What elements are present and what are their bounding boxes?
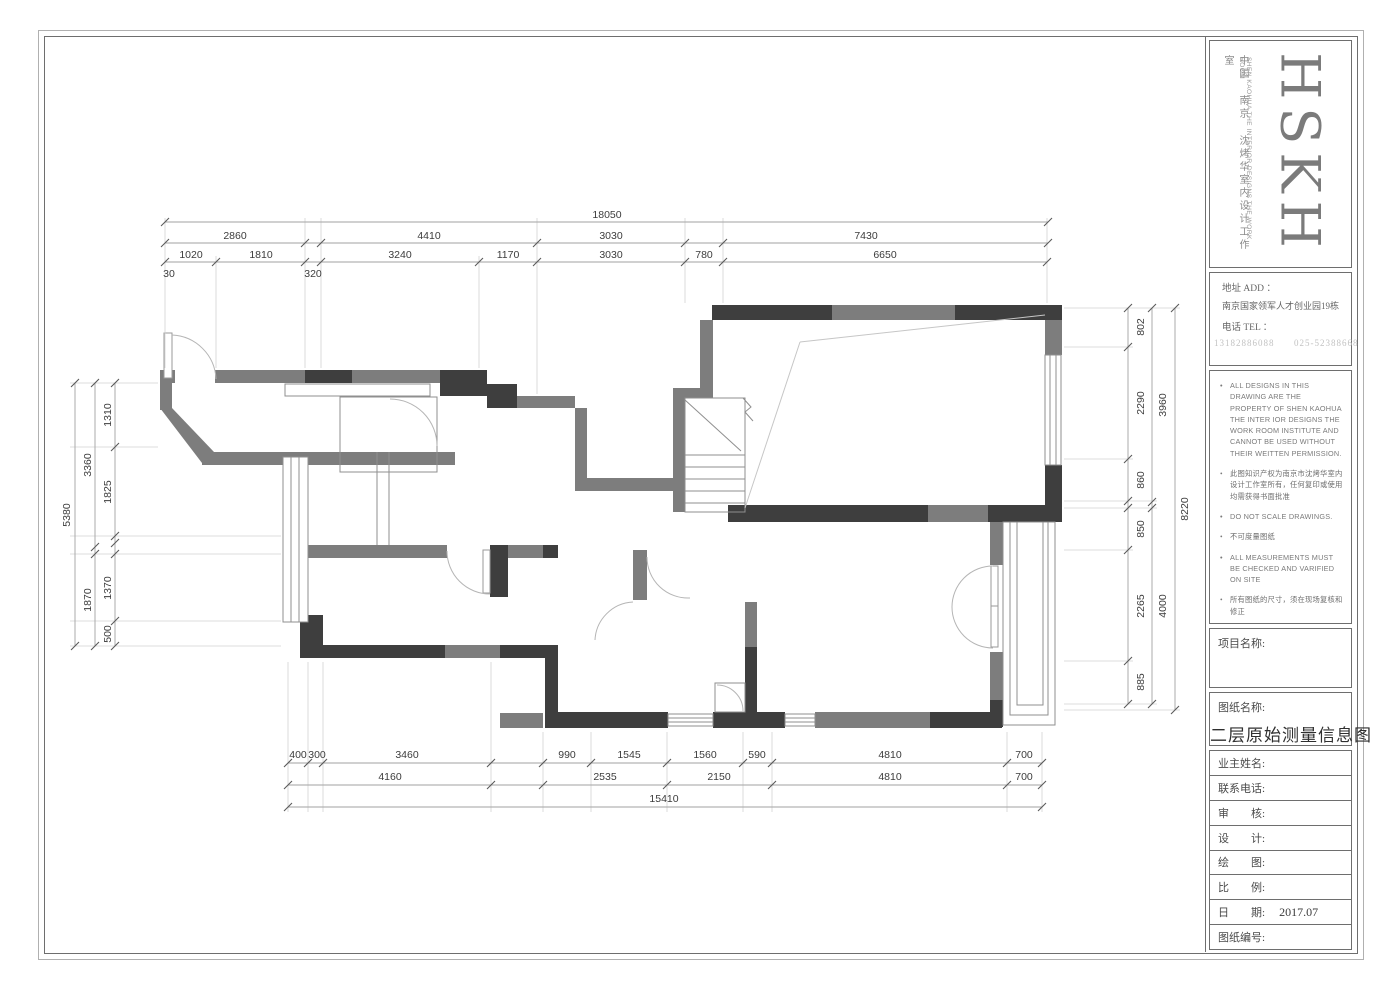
field-label: 审 核: xyxy=(1218,805,1265,821)
dim-label: 3030 xyxy=(599,249,623,261)
window-bottom-1 xyxy=(668,714,713,726)
dim-label: 2150 xyxy=(707,771,731,783)
dim-label: 700 xyxy=(1015,749,1033,761)
dim-label: 990 xyxy=(558,749,576,761)
dim-label: 2265 xyxy=(1135,594,1147,618)
bay-window-mid xyxy=(1010,522,1048,715)
french-door-swing-upper xyxy=(952,566,993,607)
dim-label: 400 xyxy=(289,749,307,761)
field-row-drawing-no: 图纸编号: xyxy=(1210,925,1351,949)
field-row-design: 设 计: xyxy=(1210,826,1351,851)
dim-label: 590 xyxy=(748,749,766,761)
note-item: ALL DESIGNS IN THIS DRAWING ARE THE PROP… xyxy=(1230,380,1343,459)
dim-label: 4810 xyxy=(878,771,902,783)
dim-label: 3360 xyxy=(82,453,94,477)
bay-window-inner xyxy=(1017,522,1043,705)
bay-window-outer xyxy=(1003,522,1055,725)
field-label: 图纸编号: xyxy=(1218,929,1265,945)
dim-label: 1810 xyxy=(249,249,273,261)
dim-label: 30 xyxy=(163,268,175,280)
drawing-name-label: 图纸名称: xyxy=(1218,699,1351,715)
closet-door-swing xyxy=(390,399,437,446)
dim-label: 3240 xyxy=(388,249,412,261)
dim-label: 7430 xyxy=(854,230,878,242)
window-right-living xyxy=(1045,355,1061,465)
note-item: 所有图纸的尺寸，须在现场复核和修正 xyxy=(1230,594,1343,617)
dim-label: 1370 xyxy=(102,576,114,600)
alcove-outline xyxy=(715,683,745,712)
middle-room-door-swing xyxy=(595,602,633,640)
logo-box: 中国 南京 沈烤华室内设计工作室 SHEN KAOHUA THE INTERIO… xyxy=(1209,40,1352,268)
field-label: 比 例: xyxy=(1218,879,1265,895)
field-label: 联系电话: xyxy=(1218,780,1265,796)
dim-label: 2860 xyxy=(223,230,247,242)
title-fields-box: 业主姓名: 联系电话: 审 核: 设 计: 绘 图: 比 例: 日 期: 201… xyxy=(1209,750,1352,950)
dim-label: 1825 xyxy=(102,480,114,504)
field-value: 2017.07 xyxy=(1279,905,1318,920)
dim-label: 4000 xyxy=(1157,594,1169,618)
note-item: ALL MEASUREMENTS MUST BE CHECKED AND VAR… xyxy=(1230,552,1343,586)
dim-label: 1560 xyxy=(693,749,717,761)
french-door-swing-lower xyxy=(952,607,993,648)
field-label: 设 计: xyxy=(1218,830,1265,846)
field-row-draft: 绘 图: xyxy=(1210,851,1351,876)
dim-label: 300 xyxy=(308,749,326,761)
drawing-name: 二层原始测量信息图 xyxy=(1210,721,1351,746)
window-left-bedroom xyxy=(283,457,308,622)
dim-label: 780 xyxy=(695,249,713,261)
note-item: 不可度量图纸 xyxy=(1230,531,1343,542)
dim-label: 850 xyxy=(1135,520,1147,538)
tel-label: 电话 TEL ： xyxy=(1222,319,1351,333)
cabinet-outline xyxy=(285,384,430,396)
dim-label: 802 xyxy=(1135,318,1147,336)
dim-label: 1870 xyxy=(82,588,94,612)
dim-label: 500 xyxy=(102,625,114,643)
hskh-logo: HSKH xyxy=(1269,52,1332,256)
field-row-date: 日 期: 2017.07 xyxy=(1210,900,1351,925)
floor-plan-canvas: 18050 2860 4410 3030 7430 1020 1810 3240… xyxy=(0,0,1400,989)
drawing-name-box: 图纸名称: 二层原始测量信息图 xyxy=(1209,692,1352,746)
field-label: 绘 图: xyxy=(1218,854,1265,870)
field-row-scale: 比 例: xyxy=(1210,875,1351,900)
dim-label: 6650 xyxy=(873,249,897,261)
note-item: 此图知识产权为南京市沈烤华室内设计工作室所有，任何复印或使用均需获得书面批准 xyxy=(1230,468,1343,502)
dim-label: 2535 xyxy=(593,771,617,783)
address-box: 地址 ADD ： 南京国家领军人才创业园19栋 电话 TEL ： 1318288… xyxy=(1209,272,1352,366)
field-row-review: 审 核: xyxy=(1210,801,1351,826)
dim-label: 3030 xyxy=(599,230,623,242)
field-label: 日 期: xyxy=(1218,904,1265,920)
dim-left-total: 5380 xyxy=(61,503,73,527)
field-row-phone: 联系电话: xyxy=(1210,776,1351,801)
window-bottom-2 xyxy=(785,714,815,726)
project-name-label: 项目名称: xyxy=(1218,635,1351,651)
french-door-leaf-upper xyxy=(991,566,998,607)
dim-label: 1170 xyxy=(497,249,520,261)
logo-english-text: SHEN KAOHUA THE INTERIOR DESIGNS THE WOR… xyxy=(1238,57,1252,255)
dim-label: 320 xyxy=(304,268,322,280)
dim-label: 3460 xyxy=(395,749,419,761)
dim-label: 860 xyxy=(1135,471,1147,489)
dim-label: 885 xyxy=(1135,673,1147,691)
alcove-door-swing xyxy=(717,685,743,711)
dim-label: 700 xyxy=(1015,771,1033,783)
dim-bottom-total: 15410 xyxy=(649,793,678,805)
address-value: 南京国家领军人才创业园19栋 xyxy=(1214,299,1347,312)
dim-label: 3960 xyxy=(1157,393,1169,417)
slope-lines xyxy=(745,315,1045,508)
dim-label: 4810 xyxy=(878,749,902,761)
bedroom-door-leaf xyxy=(483,550,490,593)
stair-run-line xyxy=(685,400,741,451)
tel-value: 13182886088 025-52388668 xyxy=(1214,338,1347,348)
address-label: 地址 ADD ： xyxy=(1222,280,1351,294)
dim-label: 1545 xyxy=(617,749,641,761)
dim-label: 1310 xyxy=(102,403,114,427)
dim-label: 2290 xyxy=(1135,391,1147,415)
hall-door-swing xyxy=(647,557,690,598)
dim-label: 1020 xyxy=(179,249,203,261)
notes-box: ALL DESIGNS IN THIS DRAWING ARE THE PROP… xyxy=(1209,370,1352,624)
field-label: 业主姓名: xyxy=(1218,755,1265,771)
project-name-box: 项目名称: xyxy=(1209,628,1352,688)
staircase xyxy=(685,398,753,512)
dim-top-total: 18050 xyxy=(592,209,621,221)
note-item: DO NOT SCALE DRAWINGS. xyxy=(1230,511,1343,522)
windows-layer xyxy=(283,355,1061,726)
drawing-sheet: 18050 2860 4410 3030 7430 1020 1810 3240… xyxy=(0,0,1400,989)
dim-right-total: 8220 xyxy=(1179,497,1191,521)
dim-label: 4410 xyxy=(417,230,441,242)
french-door-leaf-lower xyxy=(991,606,998,647)
field-row-owner: 业主姓名: xyxy=(1210,751,1351,776)
dim-label: 4160 xyxy=(378,771,402,783)
entry-door-opening xyxy=(175,369,215,384)
